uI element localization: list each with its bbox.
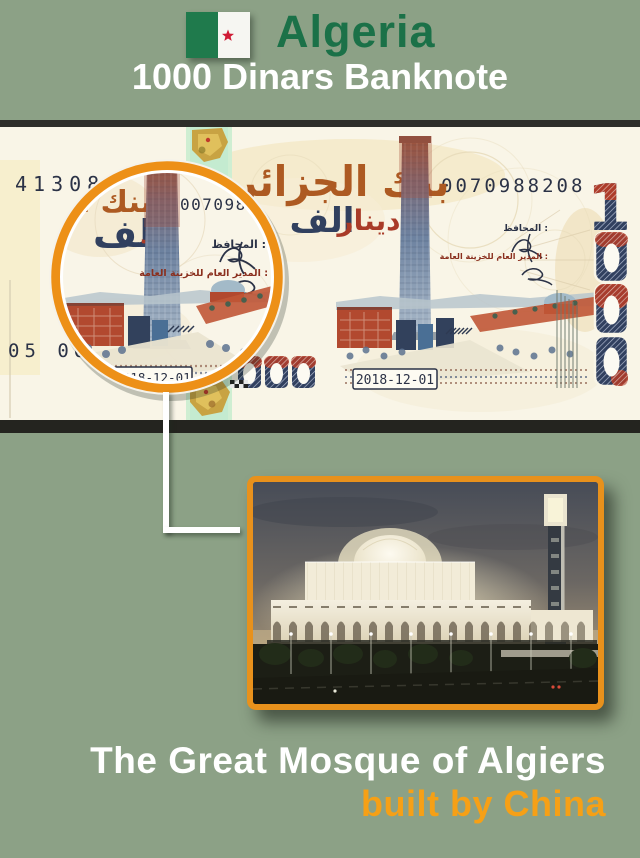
algeria-flag-icon — [186, 12, 250, 58]
caption-mosque-name: The Great Mosque of Algiers — [90, 740, 606, 781]
denomination-arabic-dinar: دينار — [336, 204, 401, 237]
infographic: Algeria 1000 Dinars Banknote — [0, 0, 640, 858]
serial-top-right: 0070988208 — [441, 175, 585, 197]
banknote-image: 41308 05 00 0070988208 بنك الجزائر الف د… — [0, 120, 640, 433]
connector-line-horizontal — [163, 527, 240, 533]
governor-label: المحافظ : — [503, 224, 548, 234]
country-title: Algeria — [276, 6, 436, 58]
mosque-photo — [247, 476, 604, 710]
magnified-director-label: المدير العام للخزينة العامة : — [139, 268, 268, 279]
connector-line-vertical — [163, 392, 169, 533]
date-box: 2018-12-01 — [353, 369, 437, 389]
caption-built-by-china: built by China — [90, 784, 606, 824]
crescent-star-icon — [186, 12, 250, 58]
issue-date: 2018-12-01 — [356, 373, 434, 388]
caption-block: The Great Mosque of Algiers built by Chi… — [90, 740, 606, 825]
director-label: المدير العام للخزينة العامة : — [440, 252, 548, 261]
banknote-subtitle: 1000 Dinars Banknote — [0, 56, 640, 98]
